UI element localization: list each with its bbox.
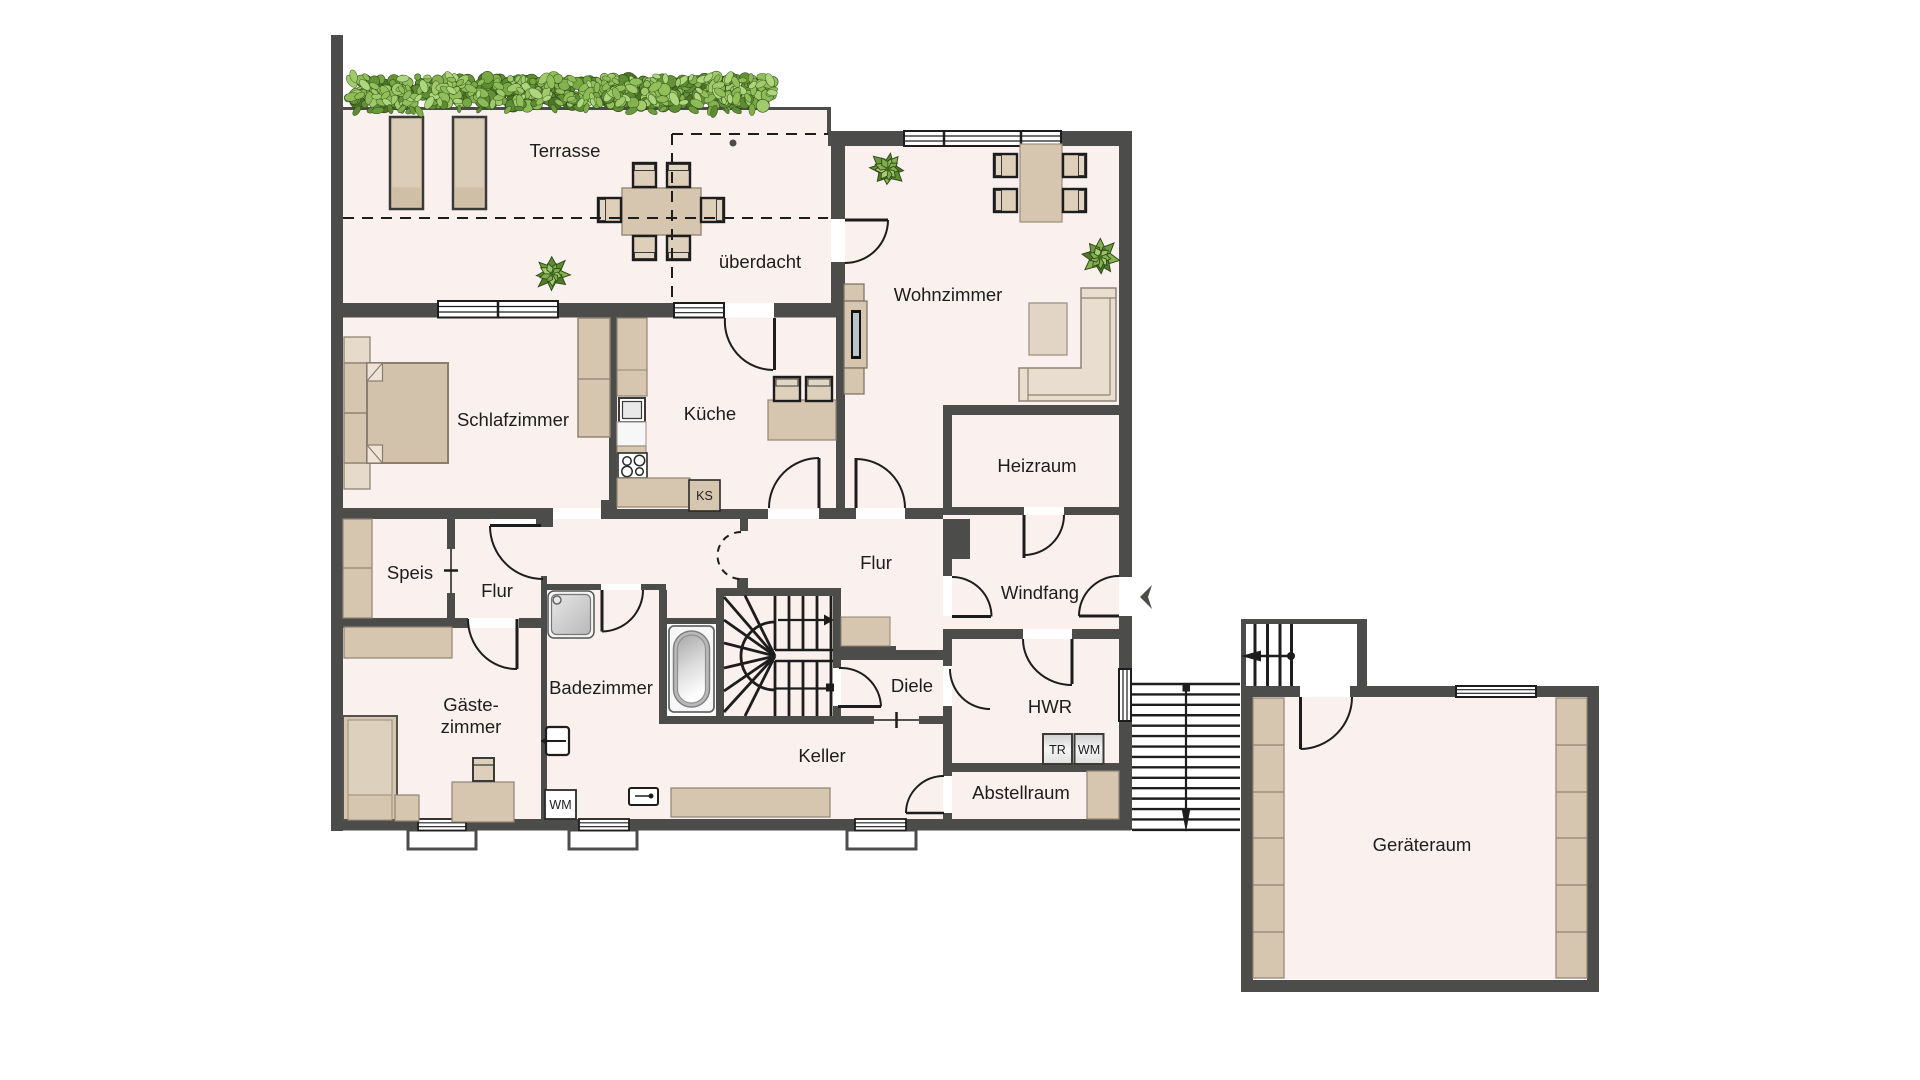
svg-text:Küche: Küche	[684, 403, 736, 424]
svg-text:zimmer: zimmer	[441, 716, 502, 737]
svg-text:Schlafzimmer: Schlafzimmer	[457, 409, 569, 430]
svg-text:Gäste-: Gäste-	[443, 694, 499, 715]
svg-text:Wohnzimmer: Wohnzimmer	[894, 284, 1003, 305]
svg-text:Speis: Speis	[387, 562, 433, 583]
svg-text:HWR: HWR	[1028, 696, 1072, 717]
svg-text:Windfang: Windfang	[1001, 582, 1079, 603]
svg-text:Abstellraum: Abstellraum	[972, 782, 1070, 803]
svg-text:Diele: Diele	[891, 675, 933, 696]
svg-text:Flur: Flur	[860, 552, 892, 573]
svg-text:Badezimmer: Badezimmer	[549, 677, 653, 698]
svg-text:WM: WM	[1078, 743, 1100, 757]
svg-text:Flur: Flur	[481, 580, 513, 601]
svg-text:WM: WM	[549, 798, 571, 812]
svg-text:Terrasse: Terrasse	[530, 140, 601, 161]
svg-text:TR: TR	[1049, 743, 1066, 757]
svg-text:überdacht: überdacht	[719, 251, 801, 272]
svg-text:KS: KS	[696, 489, 713, 503]
svg-text:Geräteraum: Geräteraum	[1373, 834, 1472, 855]
svg-text:Keller: Keller	[798, 745, 845, 766]
svg-text:Heizraum: Heizraum	[997, 455, 1076, 476]
